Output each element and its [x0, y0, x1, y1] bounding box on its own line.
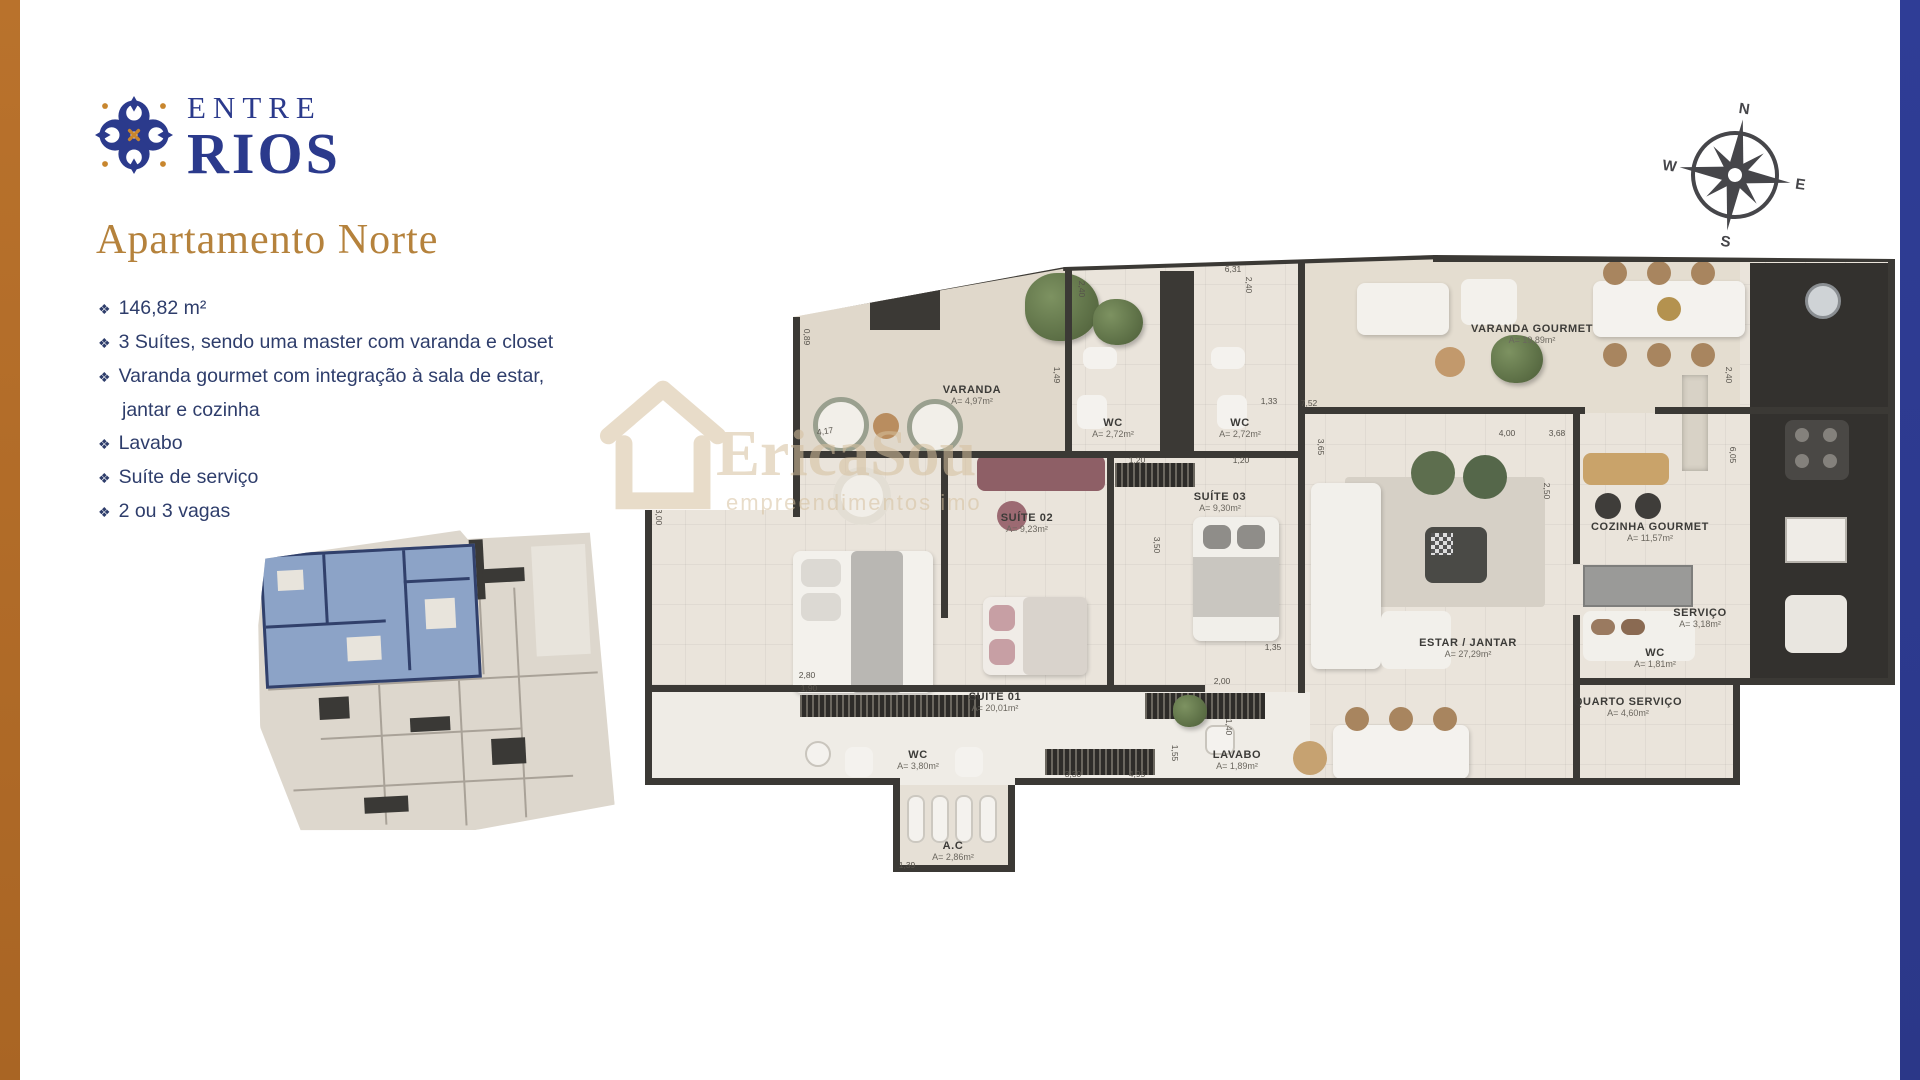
left-accent-bar	[0, 0, 20, 1080]
dining-chair	[1345, 707, 1369, 731]
feature-text: Varanda gourmet com integração à sala de…	[119, 365, 545, 421]
dimension-label: 1,98	[1018, 839, 1028, 856]
room-area: A= 4,97m²	[943, 396, 1001, 406]
floor-plan: VARANDA A= 4,97m² WC A= 2,72m² WC A= 2,7…	[645, 255, 1895, 885]
balcony-side-table	[873, 413, 899, 439]
feature-item: ❖146,82 m²	[98, 292, 576, 326]
wardrobe	[1115, 463, 1195, 487]
stone-pillar	[1682, 375, 1708, 471]
features-list: ❖146,82 m² ❖3 Suítes, sendo uma master c…	[98, 292, 576, 529]
compass-north-label: N	[1738, 100, 1751, 118]
feature-text: 146,82 m²	[119, 297, 207, 319]
room-area: A= 2,72m²	[1092, 429, 1134, 439]
kitchen-island	[1583, 453, 1669, 485]
logo: ENTRE RIOS	[95, 92, 341, 183]
dining-chair	[1647, 261, 1671, 285]
dimension-label: 1,55	[1170, 745, 1180, 762]
dining-chair	[1603, 343, 1627, 367]
feature-text: Lavabo	[119, 432, 183, 454]
feature-item: ❖Suíte de serviço	[98, 461, 576, 495]
wardrobe	[800, 695, 980, 717]
room-name: SUÍTE 03	[1194, 491, 1247, 503]
suite02-desk	[977, 455, 1105, 491]
room-label: ESTAR / JANTAR A= 27,29m²	[1419, 637, 1517, 659]
rosette-logo-icon	[95, 96, 173, 179]
room-area: A= 1,81m²	[1634, 659, 1676, 669]
wc-sink	[1083, 347, 1117, 369]
dimension-label: 2,80	[799, 670, 816, 680]
dimension-label: 2,40	[1244, 277, 1254, 294]
room-name: A.C	[932, 840, 974, 852]
room-name: ESTAR / JANTAR	[1419, 637, 1517, 649]
room-area: A= 9,23m²	[1001, 524, 1054, 534]
dimension-label: 7,52	[1301, 398, 1318, 408]
dining-chair	[1691, 261, 1715, 285]
dining-chair	[1647, 343, 1671, 367]
ac-unit	[907, 795, 925, 843]
ac-unit	[931, 795, 949, 843]
key-plan	[250, 523, 615, 841]
dimension-label: 1,20	[1129, 455, 1146, 465]
key-plan-footprint	[250, 523, 615, 841]
feature-item: ❖Varanda gourmet com integração à sala d…	[98, 360, 576, 427]
kitchen-sink	[1805, 283, 1841, 319]
room-label: SUÍTE 01 A= 20,01m²	[969, 691, 1022, 713]
outdoor-sofa	[1357, 283, 1449, 335]
feature-item: ❖Lavabo	[98, 427, 576, 461]
suite02-bed	[983, 597, 1087, 675]
kitchen-cabinet	[1785, 517, 1847, 563]
room-name: SUÍTE 02	[1001, 512, 1054, 524]
dimension-label: 3,50	[1152, 537, 1162, 554]
room-area: A= 1,89m²	[1213, 761, 1261, 771]
lounge-chair	[833, 467, 891, 525]
room-label: LAVABO A= 1,89m²	[1213, 749, 1261, 771]
dimension-label: 2,00	[1214, 676, 1231, 686]
room-name: WC	[1092, 417, 1134, 429]
dimension-label: 1,35	[1265, 642, 1282, 652]
room-area: A= 3,18m²	[1673, 619, 1727, 629]
dimension-label: 3,00	[654, 509, 664, 526]
room-area: A= 9,30m²	[1194, 503, 1247, 513]
room-area: A= 27,29m²	[1419, 649, 1517, 659]
room-label: WC A= 3,80m²	[897, 749, 939, 771]
room-name: COZINHA GOURMET	[1591, 521, 1709, 533]
feature-item: ❖3 Suítes, sendo uma master com varanda …	[98, 326, 576, 360]
room-area: A= 3,80m²	[897, 761, 939, 771]
room-area: A= 2,72m²	[1219, 429, 1261, 439]
dimension-label: 1,90	[801, 683, 818, 693]
dimension-label: 3,30	[1065, 769, 1082, 779]
wc-toilet	[845, 747, 873, 777]
stove	[1785, 420, 1849, 480]
dimension-label: 2,40	[1724, 367, 1734, 384]
dimension-label: 1,40	[1224, 719, 1234, 736]
dimension-label: 2,40	[1077, 281, 1087, 298]
dimension-label: 3,68	[1549, 428, 1566, 438]
dining-chair	[1603, 261, 1627, 285]
balcony-armchair	[813, 397, 869, 453]
room-area: A= 4,60m²	[1574, 708, 1682, 718]
dimension-label: 2,50	[1542, 483, 1552, 500]
side-table	[1435, 347, 1465, 377]
feature-text: 2 ou 3 vagas	[119, 500, 231, 522]
room-label: QUARTO SERVIÇO A= 4,60m²	[1574, 696, 1682, 718]
dimension-label: 6,05	[1728, 447, 1738, 464]
room-name: WC	[1634, 647, 1676, 659]
ac-unit	[955, 795, 973, 843]
pouf	[1463, 455, 1507, 499]
feature-item: ❖2 ou 3 vagas	[98, 495, 576, 529]
dimension-label: 6,31	[1225, 264, 1242, 274]
room-name: SUÍTE 01	[969, 691, 1022, 703]
stool	[1635, 493, 1661, 519]
room-label: SERVIÇO A= 3,18m²	[1673, 607, 1727, 629]
room-label: VARANDA GOURMET A= 19,89m²	[1471, 323, 1593, 345]
ac-unit	[979, 795, 997, 843]
dimension-label: 3,65	[1316, 439, 1326, 456]
right-accent-bar	[1900, 0, 1920, 1080]
room-label: WC A= 2,72m²	[1219, 417, 1261, 439]
wc-sink	[1211, 347, 1245, 369]
dimension-label: 1,49	[1052, 367, 1062, 384]
room-label: SUÍTE 02 A= 9,23m²	[1001, 512, 1054, 534]
room-area: A= 20,01m²	[969, 703, 1022, 713]
room-label: COZINHA GOURMET A= 11,57m²	[1591, 521, 1709, 543]
suite03-bed	[1193, 517, 1279, 641]
key-plan-highlighted-unit	[259, 544, 482, 689]
wc-sink	[805, 741, 831, 767]
room-label: WC A= 2,72m²	[1092, 417, 1134, 439]
plant	[1093, 299, 1143, 345]
feature-bullet-icon: ❖	[98, 470, 111, 486]
feature-text: Suíte de serviço	[119, 466, 259, 488]
fridge	[1785, 595, 1847, 653]
feature-bullet-icon: ❖	[98, 369, 111, 385]
compass-east-label: E	[1794, 176, 1806, 194]
logo-text-rios: RIOS	[187, 125, 341, 183]
gourmet-dining-table	[1593, 281, 1745, 337]
room-label: WC A= 1,81m²	[1634, 647, 1676, 669]
feature-text: 3 Suítes, sendo uma master com varanda e…	[119, 331, 554, 353]
coffee-table	[1425, 527, 1487, 583]
feature-bullet-icon: ❖	[98, 301, 111, 317]
room-name: QUARTO SERVIÇO	[1574, 696, 1682, 708]
dimension-label: 0,89	[802, 329, 812, 346]
room-area: A= 2,86m²	[932, 852, 974, 862]
room-label: SUÍTE 03 A= 9,30m²	[1194, 491, 1247, 513]
room-area: A= 11,57m²	[1591, 533, 1709, 543]
page-title: Apartamento Norte	[96, 216, 438, 264]
basket	[1293, 741, 1327, 775]
compass-south-label: S	[1719, 233, 1731, 250]
balcony-armchair	[907, 399, 963, 455]
pouf	[1411, 451, 1455, 495]
room-name: SERVIÇO	[1673, 607, 1727, 619]
feature-bullet-icon: ❖	[98, 504, 111, 520]
room-label: A.C A= 2,86m²	[932, 840, 974, 862]
sofa	[1311, 483, 1381, 669]
dining-chair	[1433, 707, 1457, 731]
dimension-label: 1,20	[1233, 455, 1250, 465]
plant	[1173, 695, 1207, 727]
room-name: VARANDA GOURMET	[1471, 323, 1593, 335]
room-name: LAVABO	[1213, 749, 1261, 761]
wc-toilet	[955, 747, 983, 777]
logo-text-entre: ENTRE	[187, 92, 341, 123]
room-name: WC	[897, 749, 939, 761]
compass-rose-icon: N S E W	[1660, 100, 1810, 255]
stool	[1595, 493, 1621, 519]
room-label: VARANDA A= 4,97m²	[943, 384, 1001, 406]
dimension-label: 1,39	[899, 860, 916, 870]
dimension-label: 4,95	[1129, 769, 1146, 779]
room-name: WC	[1219, 417, 1261, 429]
plant	[1025, 273, 1099, 341]
dimension-label: 4,00	[1499, 428, 1516, 438]
room-area: A= 19,89m²	[1471, 335, 1593, 345]
dining-chair	[1691, 343, 1715, 367]
kitchen-appliances	[1583, 565, 1693, 607]
feature-bullet-icon: ❖	[98, 335, 111, 351]
dining-chair	[1389, 707, 1413, 731]
room-name: VARANDA	[943, 384, 1001, 396]
dining-table	[1333, 725, 1469, 779]
outdoor-armchair	[1461, 279, 1517, 325]
compass-west-label: W	[1661, 157, 1678, 176]
feature-bullet-icon: ❖	[98, 436, 111, 452]
dimension-label: 1,33	[1261, 396, 1278, 406]
